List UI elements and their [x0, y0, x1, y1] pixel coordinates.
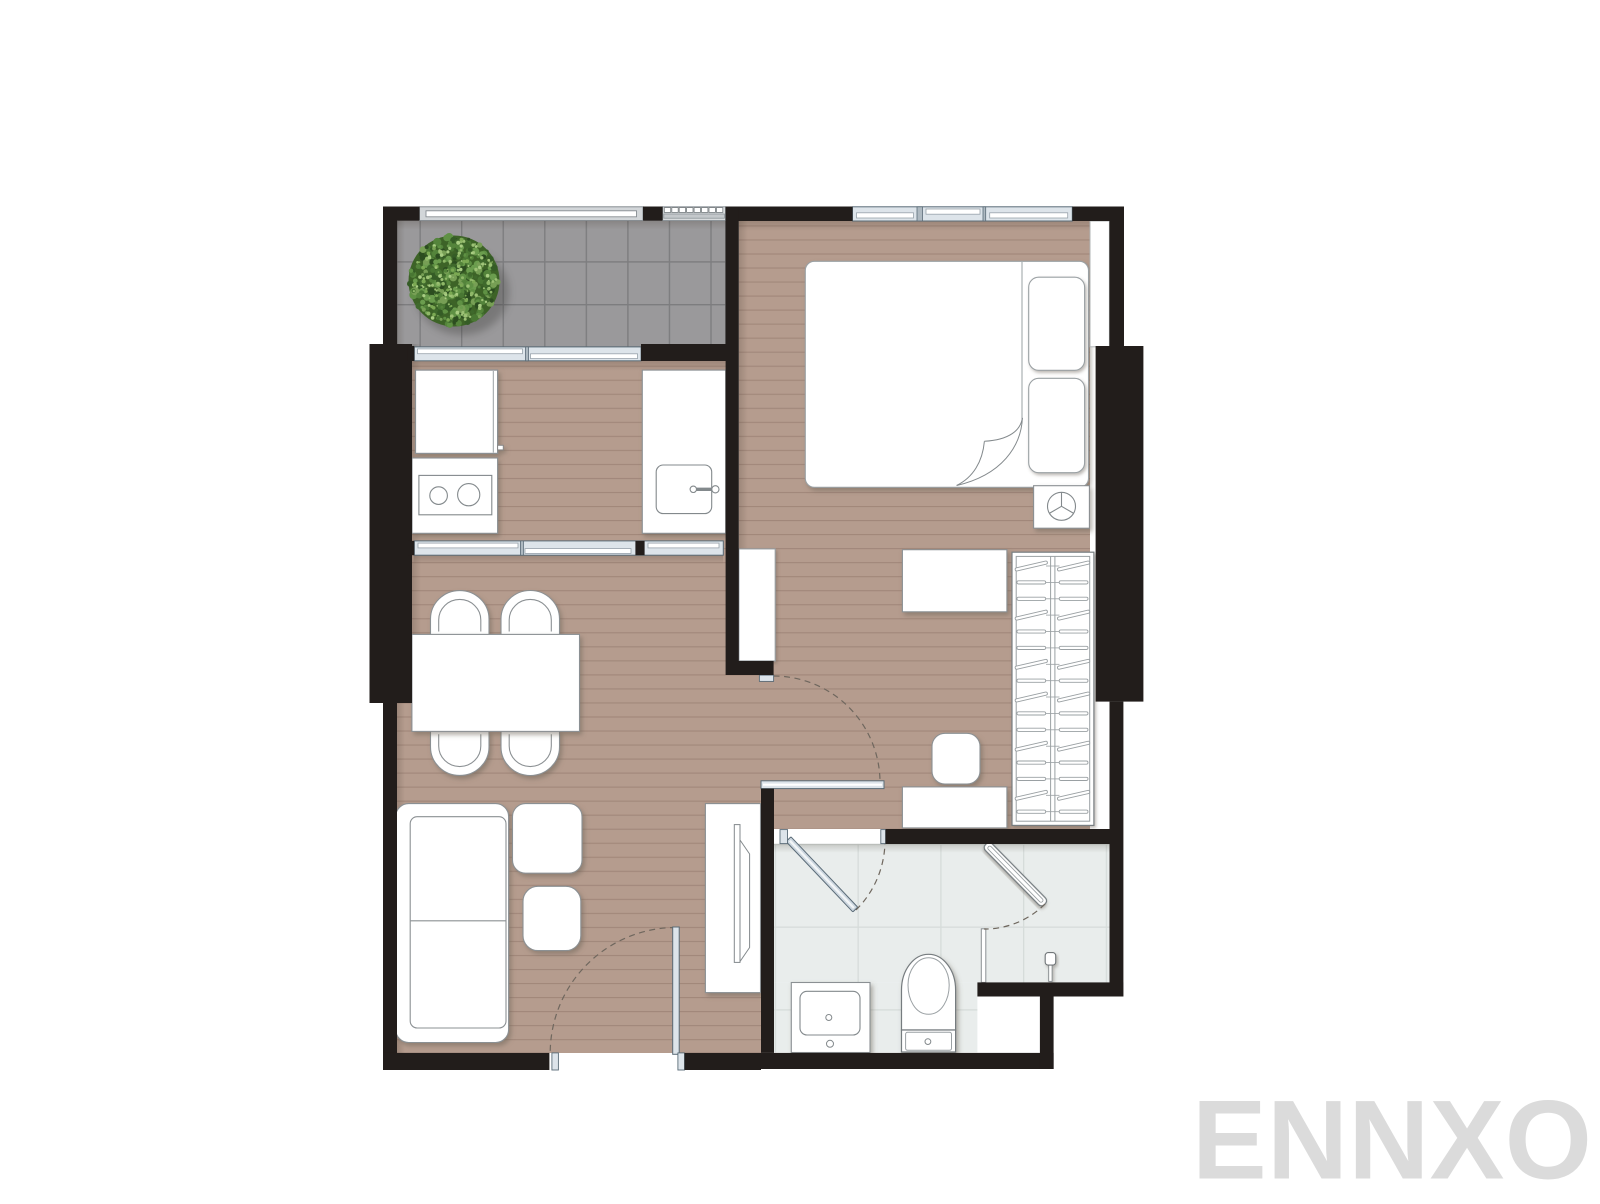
svg-text:ENNXO: ENNXO — [1192, 1078, 1592, 1203]
